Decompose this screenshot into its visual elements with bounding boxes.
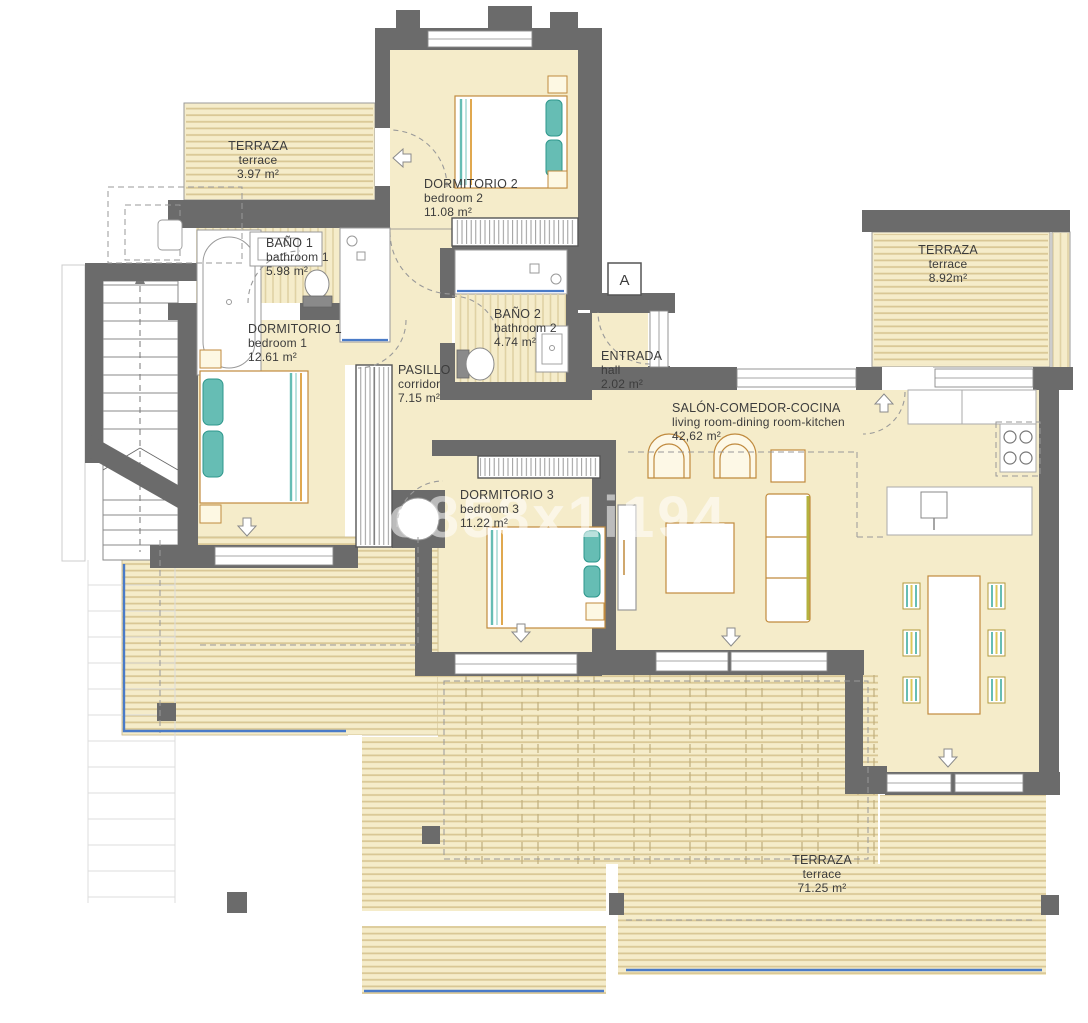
svg-text:ENTRADA: ENTRADA [601, 349, 663, 363]
floor-plan-page: A o858x1i194 TERRAZA terrace 3.97 m² DOR… [0, 0, 1088, 1023]
svg-text:hall: hall [601, 363, 620, 377]
floor-plan-drawing: A o858x1i194 TERRAZA terrace 3.97 m² DOR… [0, 0, 1088, 1023]
svg-text:11.08 m²: 11.08 m² [424, 205, 472, 219]
svg-text:bathroom 2: bathroom 2 [494, 321, 557, 335]
svg-text:TERRAZA: TERRAZA [792, 853, 852, 867]
svg-text:PASILLO: PASILLO [398, 363, 451, 377]
svg-text:corridor: corridor [398, 377, 440, 391]
svg-text:2.02 m²: 2.02 m² [601, 377, 643, 391]
svg-text:3.97 m²: 3.97 m² [237, 167, 279, 181]
svg-text:terrace: terrace [239, 153, 278, 167]
svg-text:terrace: terrace [803, 867, 842, 881]
section-marker-letter: A [619, 272, 629, 289]
svg-text:bathroom 1: bathroom 1 [266, 250, 329, 264]
svg-text:DORMITORIO 2: DORMITORIO 2 [424, 177, 518, 191]
svg-text:terrace: terrace [929, 257, 968, 271]
svg-text:71.25 m²: 71.25 m² [798, 881, 847, 895]
shower [340, 228, 390, 342]
watermark-text: o858x1i194 [388, 485, 728, 550]
svg-text:bedroom 1: bedroom 1 [248, 336, 307, 350]
sofa [766, 494, 810, 622]
shower [455, 250, 567, 294]
hob [1000, 424, 1036, 472]
svg-text:4.74 m²: 4.74 m² [494, 335, 536, 349]
svg-text:11.22 m²: 11.22 m² [460, 516, 508, 530]
small-basin [158, 220, 182, 250]
svg-text:living room-dining room-kitche: living room-dining room-kitchen [672, 415, 845, 429]
svg-text:TERRAZA: TERRAZA [228, 139, 288, 153]
svg-text:8.92m²: 8.92m² [929, 271, 968, 285]
svg-text:5.98 m²: 5.98 m² [266, 264, 308, 278]
dining-table [928, 576, 980, 714]
side-table [771, 450, 805, 482]
svg-text:BAÑO 2: BAÑO 2 [494, 307, 541, 321]
svg-text:7.15 m²: 7.15 m² [398, 391, 440, 405]
section-marker: A [608, 263, 641, 295]
svg-text:BAÑO 1: BAÑO 1 [266, 236, 313, 250]
svg-text:12.61 m²: 12.61 m² [248, 350, 297, 364]
dining-set [903, 576, 1005, 714]
kitchen-island [887, 487, 1032, 535]
toilet [305, 270, 329, 298]
svg-text:SALÓN-COMEDOR-COCINA: SALÓN-COMEDOR-COCINA [672, 400, 841, 415]
kitchen-counter [908, 390, 1036, 424]
svg-text:DORMITORIO 3: DORMITORIO 3 [460, 488, 554, 502]
svg-text:42,62 m²: 42,62 m² [672, 429, 721, 443]
svg-text:bedroom 3: bedroom 3 [460, 502, 519, 516]
bed-dormitorio-1 [200, 350, 308, 523]
svg-text:TERRAZA: TERRAZA [918, 243, 978, 257]
svg-text:DORMITORIO 1: DORMITORIO 1 [248, 322, 342, 336]
svg-text:bedroom 2: bedroom 2 [424, 191, 483, 205]
